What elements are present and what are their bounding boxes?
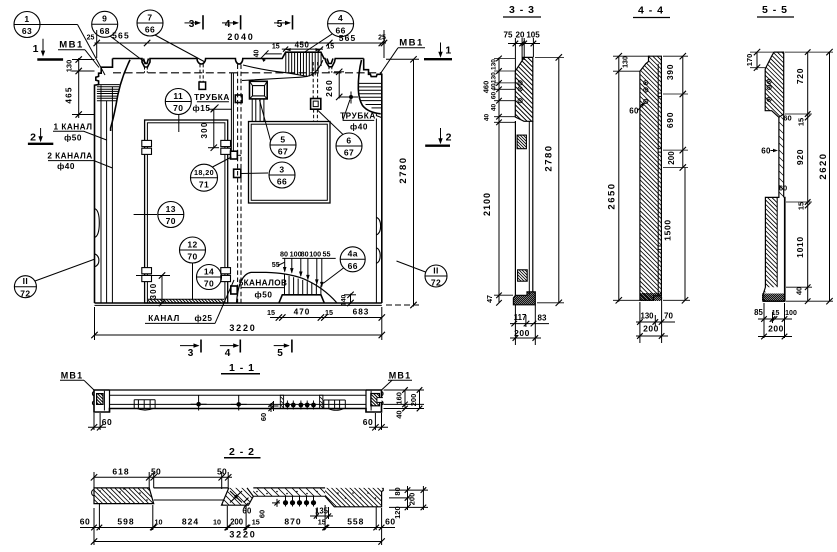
svg-text:15: 15 <box>797 118 806 126</box>
svg-text:80: 80 <box>393 487 402 495</box>
svg-text:870: 870 <box>284 517 301 527</box>
svg-text:130: 130 <box>640 312 654 321</box>
svg-text:460: 460 <box>482 81 491 94</box>
svg-text:4: 4 <box>225 19 231 30</box>
svg-text:80: 80 <box>280 250 288 259</box>
svg-text:40: 40 <box>395 410 404 418</box>
svg-text:МВ1: МВ1 <box>389 370 412 380</box>
svg-text:25: 25 <box>87 35 95 42</box>
svg-text:60: 60 <box>761 147 771 156</box>
svg-text:135: 135 <box>315 507 329 516</box>
svg-text:100: 100 <box>785 310 797 317</box>
svg-text:105: 105 <box>526 31 540 40</box>
svg-text:4: 4 <box>338 13 343 23</box>
svg-text:3: 3 <box>189 19 195 30</box>
svg-text:5: 5 <box>277 19 283 30</box>
svg-text:130: 130 <box>491 72 498 83</box>
svg-text:ф25: ф25 <box>194 314 212 323</box>
svg-text:ф40: ф40 <box>350 122 368 131</box>
svg-text:10: 10 <box>155 518 163 527</box>
svg-text:КАНАЛ: КАНАЛ <box>148 314 180 323</box>
svg-text:160: 160 <box>395 392 404 405</box>
svg-text:2100: 2100 <box>482 192 492 216</box>
svg-text:2: 2 <box>446 132 452 144</box>
svg-text:40: 40 <box>484 114 491 122</box>
svg-text:200: 200 <box>514 328 530 338</box>
svg-text:67: 67 <box>278 147 288 157</box>
svg-text:1: 1 <box>445 45 451 57</box>
svg-text:ф40: ф40 <box>57 162 75 171</box>
svg-text:МВ1: МВ1 <box>59 40 84 51</box>
svg-text:170: 170 <box>745 54 754 67</box>
svg-text:60: 60 <box>491 92 498 100</box>
svg-text:3: 3 <box>188 348 194 359</box>
svg-text:683: 683 <box>353 308 370 317</box>
svg-text:70: 70 <box>204 279 214 289</box>
svg-text:ф50: ф50 <box>254 291 272 300</box>
svg-text:70: 70 <box>173 103 183 113</box>
svg-text:2780: 2780 <box>398 156 409 183</box>
svg-text:15: 15 <box>267 308 275 317</box>
svg-text:71: 71 <box>199 179 209 189</box>
svg-text:55: 55 <box>323 250 331 259</box>
svg-text:63: 63 <box>22 26 32 36</box>
svg-text:80: 80 <box>301 250 309 259</box>
svg-text:3 - 3: 3 - 3 <box>509 4 535 16</box>
svg-text:5 - 5: 5 - 5 <box>762 4 788 16</box>
svg-text:II: II <box>433 265 439 275</box>
svg-text:15: 15 <box>272 43 280 50</box>
svg-text:470: 470 <box>294 308 311 317</box>
svg-text:720: 720 <box>795 68 805 84</box>
svg-text:60: 60 <box>779 184 787 193</box>
svg-text:ТРУБКА: ТРУБКА <box>194 93 230 102</box>
svg-text:300: 300 <box>149 283 158 300</box>
svg-text:40: 40 <box>491 104 498 112</box>
svg-text:12: 12 <box>187 239 197 249</box>
svg-text:15: 15 <box>325 308 333 317</box>
svg-text:60: 60 <box>363 417 373 427</box>
svg-text:200: 200 <box>643 324 659 334</box>
svg-text:66: 66 <box>348 261 358 271</box>
svg-text:300: 300 <box>200 122 209 139</box>
svg-text:690: 690 <box>665 112 675 128</box>
svg-text:5: 5 <box>277 348 283 359</box>
svg-text:7: 7 <box>147 12 152 22</box>
svg-text:60: 60 <box>259 413 268 421</box>
svg-text:450: 450 <box>295 41 310 50</box>
svg-text:618: 618 <box>112 467 129 477</box>
svg-text:824: 824 <box>182 517 199 527</box>
svg-text:2780: 2780 <box>544 144 555 171</box>
svg-text:130: 130 <box>623 56 630 68</box>
svg-text:13: 13 <box>166 204 176 214</box>
svg-text:ф15: ф15 <box>192 104 210 113</box>
svg-text:1: 1 <box>33 43 39 55</box>
svg-text:11: 11 <box>173 91 183 101</box>
svg-text:15: 15 <box>252 518 260 527</box>
svg-text:5КАНАЛОВ: 5КАНАЛОВ <box>239 278 288 287</box>
svg-text:390: 390 <box>665 64 675 80</box>
svg-text:3220: 3220 <box>229 530 256 540</box>
svg-text:117: 117 <box>514 313 527 322</box>
svg-text:465: 465 <box>65 86 74 103</box>
svg-text:200: 200 <box>230 518 244 527</box>
svg-text:67: 67 <box>344 148 354 158</box>
svg-text:83: 83 <box>538 314 547 323</box>
svg-text:85: 85 <box>754 308 763 317</box>
svg-text:72: 72 <box>20 288 30 298</box>
svg-text:920: 920 <box>795 149 805 165</box>
svg-text:4 - 4: 4 - 4 <box>638 5 664 17</box>
svg-text:5: 5 <box>280 134 285 144</box>
svg-text:1 - 1: 1 - 1 <box>229 362 255 374</box>
svg-text:70: 70 <box>664 312 673 321</box>
svg-text:4a: 4a <box>348 249 358 259</box>
svg-text:60: 60 <box>629 107 639 116</box>
svg-text:50: 50 <box>217 467 227 477</box>
svg-text:40: 40 <box>491 83 498 91</box>
svg-text:МВ1: МВ1 <box>61 370 84 380</box>
svg-text:3: 3 <box>279 164 284 174</box>
svg-text:598: 598 <box>117 517 134 527</box>
svg-text:47: 47 <box>487 295 494 303</box>
svg-text:10: 10 <box>213 518 221 527</box>
svg-text:70: 70 <box>187 252 197 262</box>
svg-text:60: 60 <box>783 114 791 123</box>
svg-text:3220: 3220 <box>229 323 256 333</box>
svg-text:200: 200 <box>409 394 418 407</box>
svg-text:100: 100 <box>309 250 321 259</box>
svg-text:260: 260 <box>324 79 334 97</box>
svg-text:2040: 2040 <box>227 32 254 42</box>
svg-text:558: 558 <box>347 517 364 527</box>
svg-text:1: 1 <box>24 14 29 24</box>
svg-text:130: 130 <box>491 59 498 70</box>
svg-text:40: 40 <box>254 50 261 58</box>
svg-text:70: 70 <box>166 216 176 226</box>
svg-text:4: 4 <box>225 348 231 359</box>
svg-text:120: 120 <box>393 506 402 519</box>
svg-text:2 КАНАЛА: 2 КАНАЛА <box>47 151 92 160</box>
svg-text:9: 9 <box>102 14 107 24</box>
svg-text:50: 50 <box>151 467 161 477</box>
svg-text:15: 15 <box>326 43 334 50</box>
svg-text:75: 75 <box>504 31 513 40</box>
svg-text:60: 60 <box>80 517 90 527</box>
svg-text:200: 200 <box>667 151 676 165</box>
svg-text:40: 40 <box>795 287 804 295</box>
svg-text:1500: 1500 <box>663 219 673 241</box>
svg-text:130: 130 <box>65 60 74 73</box>
svg-text:18,20: 18,20 <box>194 168 214 177</box>
svg-text:15: 15 <box>797 202 806 210</box>
svg-text:140: 140 <box>340 295 347 307</box>
svg-text:14: 14 <box>204 266 214 276</box>
svg-text:200: 200 <box>408 493 417 506</box>
svg-text:565: 565 <box>339 33 357 43</box>
svg-text:II: II <box>23 276 29 286</box>
svg-text:72: 72 <box>431 278 441 288</box>
svg-text:ф50: ф50 <box>64 134 82 143</box>
svg-text:66: 66 <box>277 177 287 187</box>
svg-text:25: 25 <box>378 34 386 41</box>
svg-text:20: 20 <box>516 31 525 40</box>
svg-text:68: 68 <box>100 26 110 36</box>
svg-text:6: 6 <box>346 135 351 145</box>
svg-text:2650: 2650 <box>607 182 618 209</box>
svg-text:2 - 2: 2 - 2 <box>229 446 255 458</box>
svg-text:15: 15 <box>772 310 780 317</box>
svg-text:МВ1: МВ1 <box>399 38 424 49</box>
svg-text:565: 565 <box>112 31 130 41</box>
svg-text:15: 15 <box>318 518 326 527</box>
svg-text:66: 66 <box>145 25 155 35</box>
svg-text:2620: 2620 <box>818 152 829 179</box>
svg-text:200: 200 <box>768 324 784 334</box>
svg-text:60: 60 <box>242 507 252 516</box>
svg-text:1010: 1010 <box>795 236 805 258</box>
svg-text:60: 60 <box>102 417 112 427</box>
svg-text:2: 2 <box>30 132 36 144</box>
svg-text:1 КАНАЛ: 1 КАНАЛ <box>54 122 93 131</box>
